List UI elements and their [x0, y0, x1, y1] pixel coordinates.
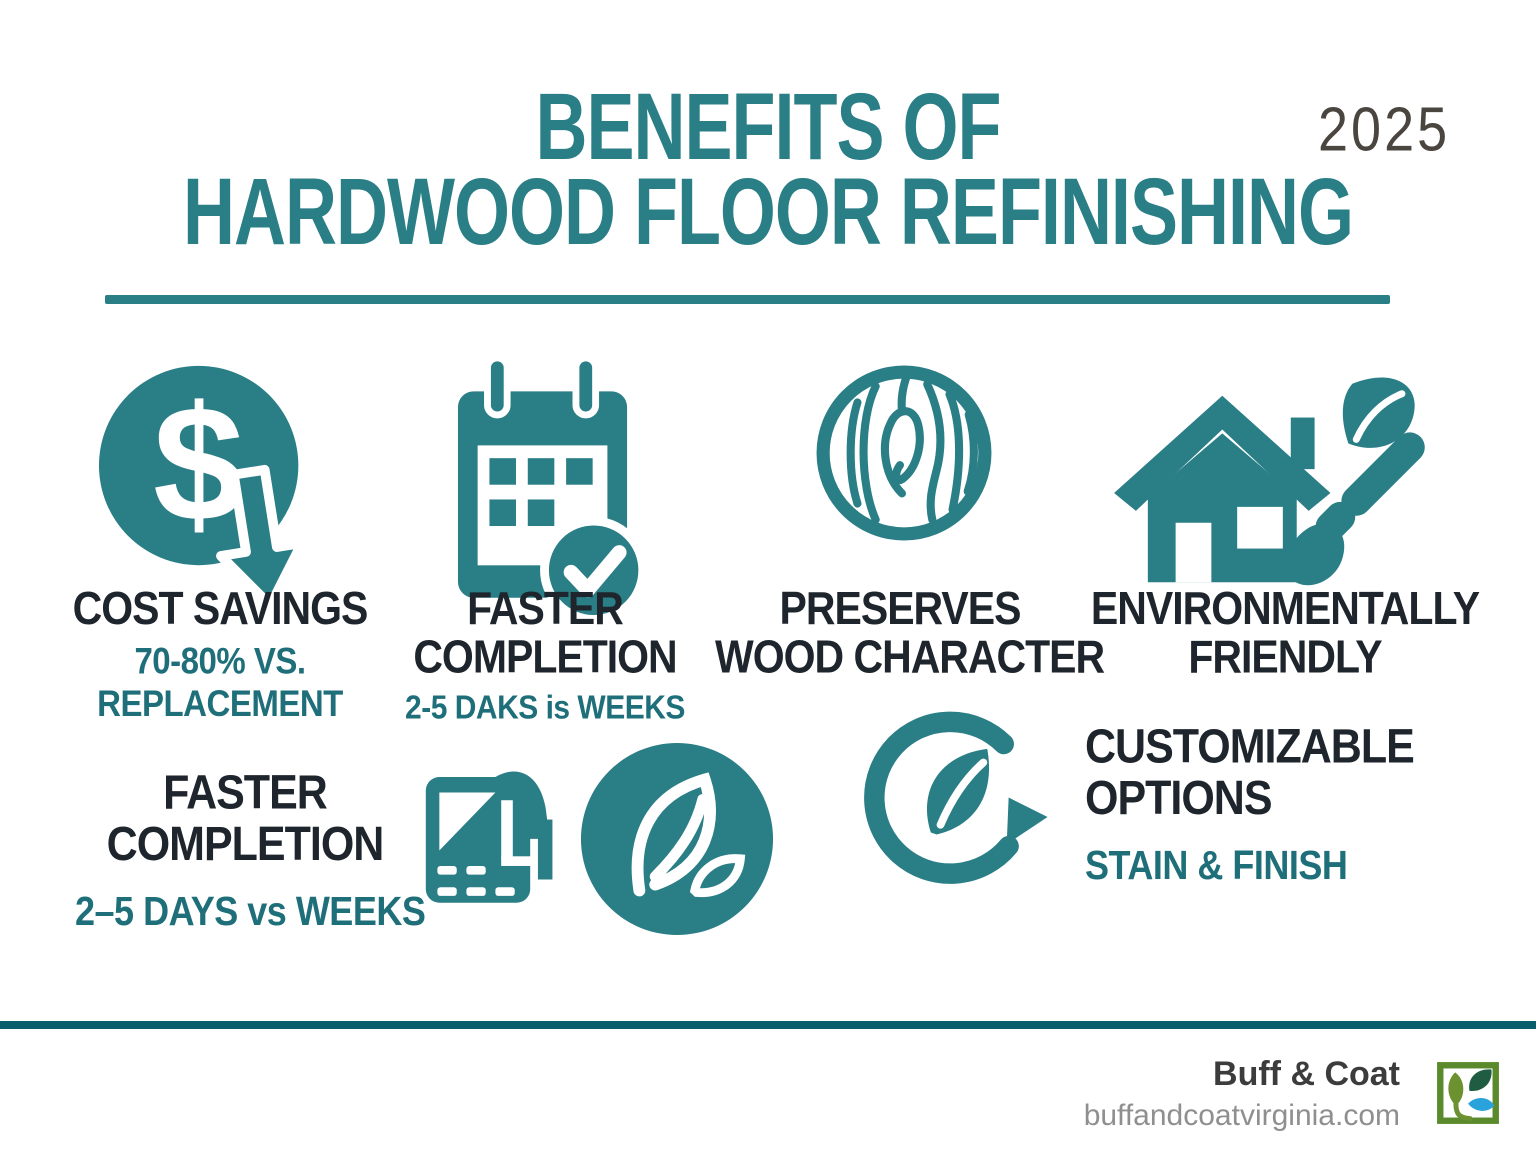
infographic-page: BENEFITS OF HARDWOOD FLOOR REFINISHING 2…: [0, 0, 1536, 1154]
title-divider: [105, 295, 1390, 304]
benefit-preserves-wood: PRESERVES WOOD CHARACTER: [715, 585, 1085, 682]
benefit-subtitle-line1: 70-80% VS.: [55, 640, 385, 682]
svg-text:$: $: [153, 371, 244, 555]
benefit-title-line1: ENVIRONMENTALLY: [1080, 585, 1490, 634]
benefit-title-line2: FRIENDLY: [1080, 634, 1490, 683]
leaf-refresh-icon: [862, 708, 1058, 888]
benefit-subtitle: 2–5 DAYS vs WEEKS: [75, 888, 415, 934]
brand-name: Buff & Coat: [1084, 1056, 1400, 1093]
benefit-customizable-options: CUSTOMIZABLE OPTIONS STAIN & FINISH: [1085, 722, 1515, 888]
benefit-cost-savings: COST SAVINGS 70-80% VS. REPLACEMENT: [55, 585, 385, 725]
brand-website: buffandcoatvirginia.com: [1084, 1099, 1400, 1132]
benefit-subtitle: STAIN & FINISH: [1085, 842, 1515, 888]
buff-and-coat-logo: [1436, 1056, 1500, 1130]
benefit-title-line1: CUSTOMIZABLE: [1085, 722, 1515, 773]
page-title-line2: HARDWOOD FLOOR REFINISHING: [0, 165, 1536, 260]
eco-leaf-circle-icon: [578, 740, 776, 938]
benefit-title-line2: WOOD CHARACTER: [715, 634, 1085, 683]
year-label: 2025: [1318, 94, 1450, 165]
footer-divider: [0, 1021, 1536, 1029]
wood-grain-icon: [813, 362, 995, 544]
benefit-faster-completion-1: FASTER COMPLETION 2-5 DAKS is WEEKS: [385, 585, 705, 727]
benefit-title-line1: PRESERVES: [715, 585, 1085, 634]
floor-install-icon: [420, 762, 565, 910]
footer-brand-block: Buff & Coat buffandcoatvirginia.com: [1084, 1056, 1400, 1132]
benefit-title: COST SAVINGS: [55, 585, 385, 634]
benefit-subtitle-line2: REPLACEMENT: [55, 683, 385, 725]
benefit-title-line2: COMPLETION: [75, 819, 415, 870]
benefit-title-line1: FASTER: [385, 585, 705, 634]
benefit-subtitle: 2-5 DAKS is WEEKS: [385, 689, 705, 727]
benefit-faster-completion-2: FASTER COMPLETION 2–5 DAYS vs WEEKS: [75, 768, 415, 934]
benefit-environmentally-friendly: ENVIRONMENTALLY FRIENDLY: [1080, 585, 1490, 682]
benefit-title-line2: COMPLETION: [385, 634, 705, 683]
benefit-title-line2: OPTIONS: [1085, 773, 1515, 824]
benefit-title-line1: FASTER: [75, 768, 415, 819]
